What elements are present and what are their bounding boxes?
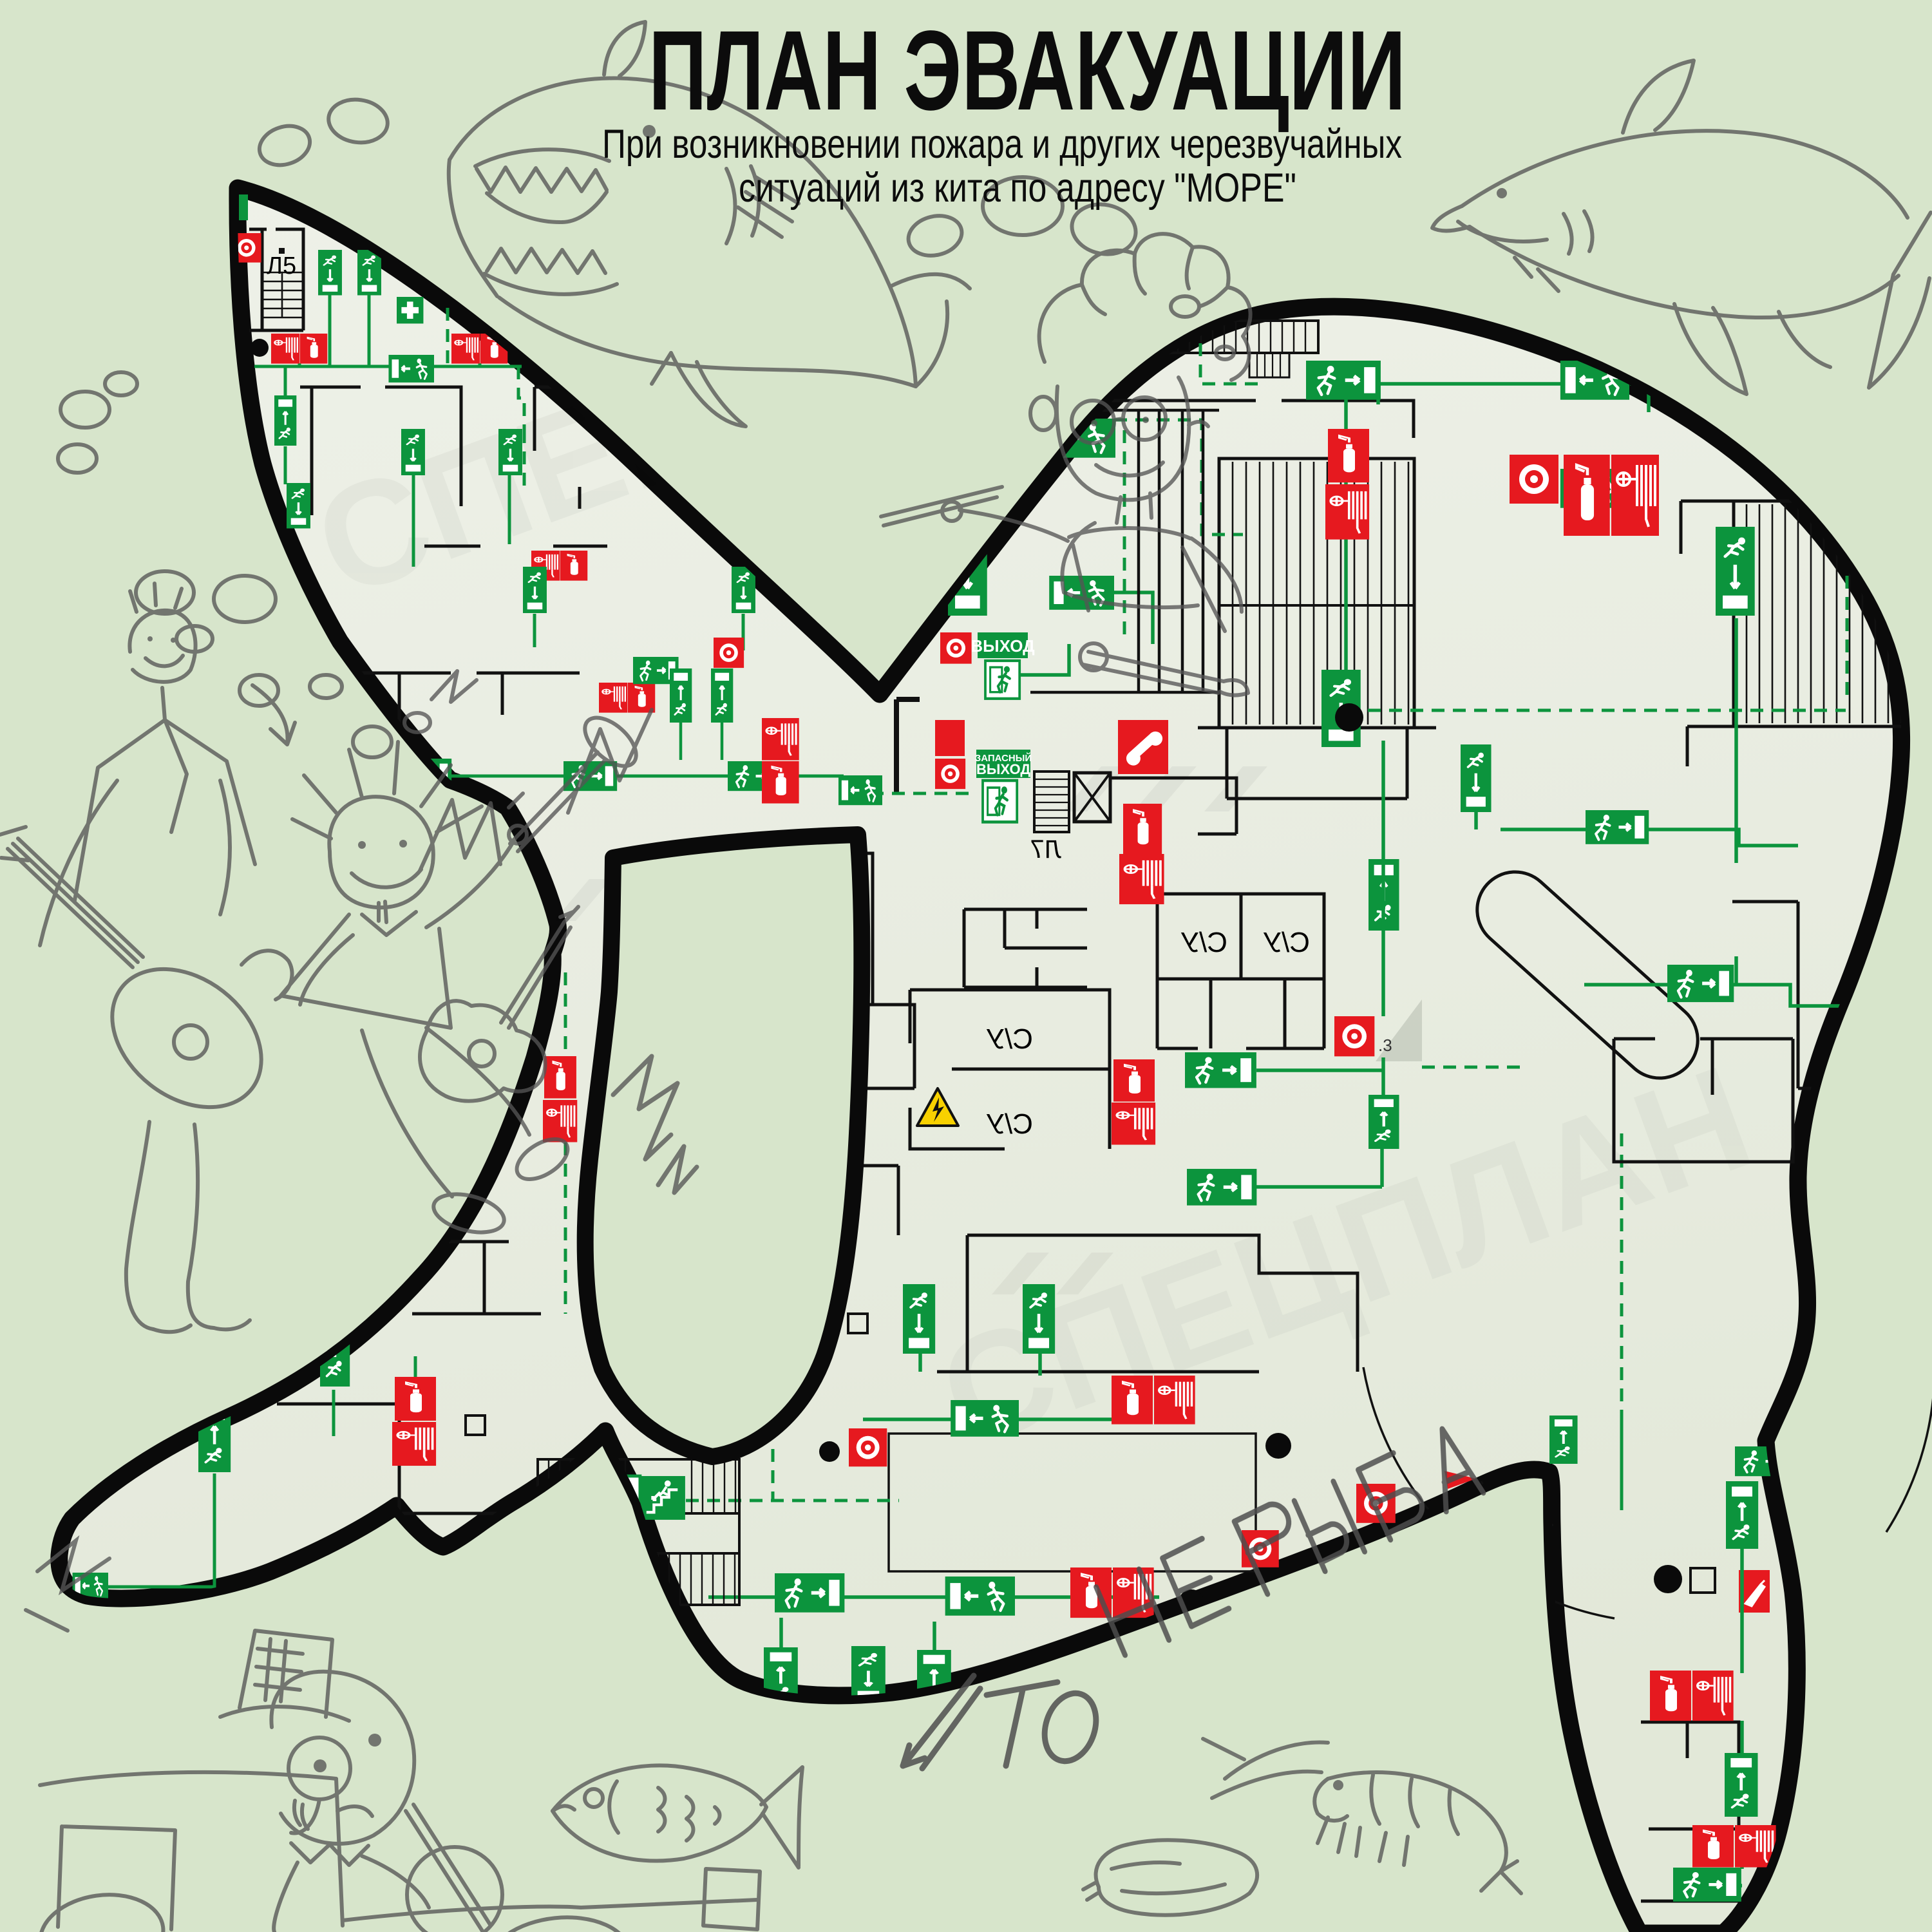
svg-text:.3: .3 bbox=[1378, 1036, 1392, 1055]
svg-text:Л7: Л7 bbox=[1030, 835, 1062, 864]
svg-text:С/У: С/У bbox=[986, 1023, 1033, 1055]
svg-text:При возникновении пожара и дру: При возникновении пожара и других черезв… bbox=[602, 122, 1402, 167]
svg-text:Л5: Л5 bbox=[267, 252, 296, 279]
svg-text:С/У: С/У bbox=[1180, 927, 1227, 958]
svg-text:ВЫХОД: ВЫХОД bbox=[976, 761, 1030, 777]
svg-text:ситуаций из кита по адресу "МО: ситуаций из кита по адресу "МОРЕ" bbox=[739, 166, 1296, 211]
svg-text:С/У: С/У bbox=[986, 1108, 1033, 1140]
svg-text:С/У: С/У bbox=[1263, 927, 1310, 958]
svg-text:ПЛАН ЭВАКУАЦИИ: ПЛАН ЭВАКУАЦИИ bbox=[649, 8, 1406, 134]
svg-text:ВЫХОД: ВЫХОД bbox=[971, 636, 1035, 656]
